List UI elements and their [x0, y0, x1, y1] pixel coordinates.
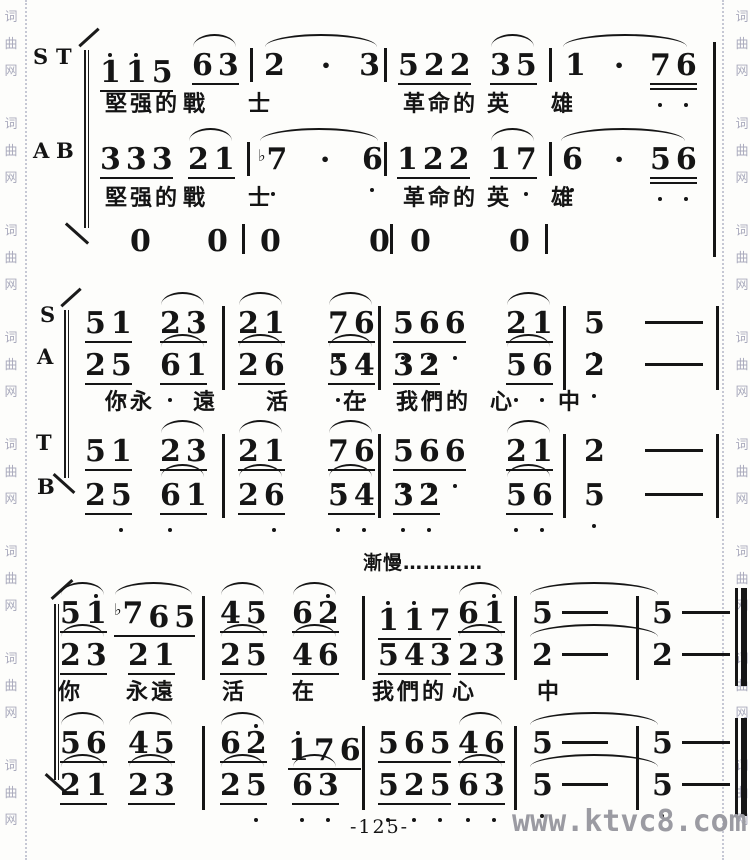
barline: [549, 48, 552, 82]
note: 2: [160, 428, 181, 467]
note-group: 46: [292, 632, 339, 675]
note: 5: [60, 720, 81, 759]
dash-line: [645, 449, 703, 452]
text: 士: [248, 180, 273, 212]
note-group: 63: [458, 762, 505, 805]
note: 6: [292, 762, 313, 801]
margin-watermark-char: 词: [734, 220, 750, 239]
barline: [636, 596, 639, 680]
text: 在: [343, 384, 368, 416]
dash-line: [682, 653, 730, 656]
note-group: •: [614, 136, 624, 179]
note-group: 5: [532, 762, 553, 805]
margin-watermark-char: 网: [734, 274, 750, 293]
note: 7: [328, 428, 349, 467]
note: 4: [458, 720, 479, 759]
system2-bracket-top: [60, 288, 81, 308]
note: 3: [318, 762, 339, 801]
note: 2: [419, 472, 440, 511]
margin-watermark-char: 网: [3, 809, 19, 828]
note: 6: [192, 42, 213, 81]
note: 5: [246, 762, 267, 801]
note: 6: [445, 300, 466, 339]
note-group: 35: [490, 42, 537, 85]
voice-label-b2: B: [37, 474, 55, 499]
note-group: 63: [292, 762, 339, 805]
dash-line: [562, 741, 608, 744]
note-group: 525: [378, 762, 451, 805]
note: 3: [359, 42, 380, 81]
note: 1: [186, 342, 207, 381]
note: 2: [128, 762, 149, 801]
note: 6: [532, 472, 553, 511]
margin-watermark-char: 曲: [3, 782, 19, 801]
margin-watermark-char: 网: [3, 595, 19, 614]
barline: [549, 142, 552, 176]
margin-watermark-char: 曲: [734, 461, 750, 480]
note-group: •: [320, 136, 330, 179]
note-group: 25: [220, 762, 267, 805]
text: 中: [558, 384, 583, 416]
barline: [222, 434, 225, 518]
final-barline: [735, 588, 747, 686]
note: 6: [532, 342, 553, 381]
tempo-marking: 漸慢…………: [363, 548, 483, 575]
barline: [242, 224, 245, 254]
note: 6: [160, 472, 181, 511]
barline: [514, 726, 517, 810]
note: 3: [484, 632, 505, 671]
note: 2: [238, 342, 259, 381]
barline: [563, 434, 566, 518]
margin-watermark-char: 曲: [3, 675, 19, 694]
barline: [390, 224, 393, 254]
barline: [636, 726, 639, 810]
note: 5: [246, 632, 267, 671]
note: 6: [220, 720, 241, 759]
note: 2: [584, 342, 605, 381]
note: 2: [506, 428, 527, 467]
note-group: 0: [369, 218, 390, 261]
note: 6: [160, 342, 181, 381]
note: 1: [126, 49, 147, 88]
dash-line: [682, 611, 730, 614]
voice-label-t2: T: [36, 430, 52, 455]
flat-icon: ♭: [258, 146, 266, 165]
text: 士: [248, 86, 273, 118]
note: 7: [650, 42, 671, 81]
note-group: 122: [397, 136, 470, 179]
note: 6: [264, 472, 285, 511]
text: 中: [537, 674, 562, 706]
text: 活: [266, 384, 291, 416]
note-group: 56: [506, 472, 553, 515]
note: 2: [506, 300, 527, 339]
note: 2: [419, 342, 440, 381]
margin-watermark-char: 词: [734, 113, 750, 132]
note-group: 566: [393, 300, 466, 343]
system2-bracket-line: [64, 310, 69, 478]
barline: [545, 224, 548, 254]
barline: [378, 434, 381, 518]
note-group: 0: [130, 218, 151, 261]
text: 戰: [183, 86, 208, 118]
note: 5: [430, 762, 451, 801]
note: 2: [238, 472, 259, 511]
barline: [384, 48, 387, 82]
note: 5: [516, 42, 537, 81]
note: 2: [60, 632, 81, 671]
note: ♭7: [258, 136, 287, 179]
note: 1: [154, 632, 175, 671]
note: 2: [238, 428, 259, 467]
text: 在: [292, 674, 317, 706]
note: 7: [516, 136, 537, 175]
note: 4: [354, 472, 375, 511]
note: 1: [490, 136, 511, 175]
note: 2: [532, 632, 553, 671]
note: 3: [100, 136, 121, 175]
voice-label-b: B: [56, 138, 74, 163]
note-group: 0: [260, 218, 281, 261]
note-group: 23: [60, 632, 107, 675]
note: 5: [652, 762, 673, 801]
text: 革命的: [403, 86, 478, 118]
note-group: 23: [458, 632, 505, 675]
note: 3: [126, 136, 147, 175]
note: 2: [85, 472, 106, 511]
text: 雄: [551, 86, 576, 118]
note: 2: [264, 42, 285, 81]
note: 5: [154, 720, 175, 759]
barline: [202, 596, 205, 680]
note: 2: [160, 300, 181, 339]
note: 3: [186, 428, 207, 467]
note: 5: [652, 590, 673, 629]
note: 1: [111, 300, 132, 339]
note: 2: [128, 632, 149, 671]
note: 5: [430, 720, 451, 759]
note: •: [614, 136, 624, 175]
note: 6: [445, 428, 466, 467]
note: 3: [86, 632, 107, 671]
note: 6: [676, 42, 697, 81]
note-group: 1: [565, 42, 586, 85]
note: 4: [404, 632, 425, 671]
note-group: 51: [85, 428, 132, 471]
margin-watermark-char: 曲: [734, 33, 750, 52]
margin-watermark-char: 曲: [734, 140, 750, 159]
dash-line: [645, 363, 703, 366]
note: 3: [430, 632, 451, 671]
note: 4: [292, 632, 313, 671]
dash-line: [682, 741, 730, 744]
note: 5: [584, 472, 605, 511]
note-group: 5: [652, 762, 673, 805]
margin-watermark-char: 曲: [3, 461, 19, 480]
note: 6: [148, 594, 169, 633]
barline: [716, 306, 719, 390]
barline: [514, 596, 517, 680]
note: 5: [111, 342, 132, 381]
note: 1: [397, 136, 418, 175]
text: 活: [222, 674, 247, 706]
margin-watermark-char: 词: [734, 434, 750, 453]
final-barline: [735, 718, 747, 816]
note: 5: [652, 720, 673, 759]
note: 6: [354, 300, 375, 339]
margin-watermark-char: 网: [3, 381, 19, 400]
dash-line: [562, 783, 608, 786]
system1-bracket-line: [84, 50, 89, 228]
barline: [362, 596, 365, 680]
note: 6: [458, 590, 479, 629]
note: 2: [318, 590, 339, 629]
note: 5: [378, 762, 399, 801]
note: 5: [393, 300, 414, 339]
margin-watermark-char: 曲: [734, 568, 750, 587]
note: 2: [424, 42, 445, 81]
note: 2: [220, 632, 241, 671]
note: 2: [220, 762, 241, 801]
note: 6: [292, 590, 313, 629]
barline: [222, 306, 225, 390]
voice-label-s: S: [33, 44, 48, 69]
note-group: ♭765: [114, 590, 195, 637]
note: 4: [128, 720, 149, 759]
barline: [250, 48, 253, 82]
note: 1: [532, 300, 553, 339]
margin-watermark-char: 词: [734, 541, 750, 560]
note: 5: [378, 632, 399, 671]
note: 1: [378, 597, 399, 636]
sheet-music-page: 词曲网词曲网词曲网词曲网词曲网词曲网词曲网词曲网 词曲网词曲网词曲网词曲网词曲网…: [0, 0, 750, 860]
text: 我們的: [372, 674, 447, 706]
margin-watermark-char: 曲: [3, 33, 19, 52]
margin-watermark-char: 网: [734, 167, 750, 186]
margin-watermark-char: 网: [734, 60, 750, 79]
note: 0: [369, 218, 390, 257]
barline: [384, 142, 387, 176]
note-group: 2: [584, 342, 605, 385]
text: 堅强的: [105, 86, 180, 118]
note-group: 6: [562, 136, 583, 179]
system1-bracket-top: [78, 28, 99, 48]
note: 4: [220, 590, 241, 629]
note: 0: [207, 218, 228, 257]
note: 5: [393, 428, 414, 467]
note: 2: [652, 632, 673, 671]
note: 6: [86, 720, 107, 759]
barline: [713, 42, 716, 257]
note-group: 61: [160, 342, 207, 385]
note: 2: [584, 428, 605, 467]
note: 2: [423, 136, 444, 175]
text: 堅强的: [105, 180, 180, 212]
note: 3: [393, 472, 414, 511]
note: 6: [419, 428, 440, 467]
note: 5: [60, 590, 81, 629]
note-group: 21: [128, 632, 175, 675]
dash-line: [645, 493, 703, 496]
note: 5: [584, 300, 605, 339]
note-group: 5: [652, 720, 673, 763]
note-group: 115: [100, 42, 173, 92]
text: 遠: [193, 384, 218, 416]
voice-label-a2: A: [37, 344, 53, 369]
note: •: [614, 42, 624, 81]
barline: [716, 434, 719, 518]
note-group: 25: [220, 632, 267, 675]
note: 2: [238, 300, 259, 339]
note: 5: [532, 762, 553, 801]
note-group: 21: [188, 136, 235, 179]
page-number: -125-: [350, 816, 409, 838]
note: •: [320, 136, 330, 175]
margin-watermark-char: 词: [3, 327, 19, 346]
note-group: 63: [192, 42, 239, 85]
margin-watermark-char: 网: [3, 274, 19, 293]
note: 6: [562, 136, 583, 175]
margin-watermark-char: 曲: [3, 354, 19, 373]
left-margin-rule: [25, 0, 27, 860]
margin-watermark-char: 网: [3, 60, 19, 79]
note: 1: [484, 590, 505, 629]
note: 1: [86, 762, 107, 801]
note: 4: [354, 342, 375, 381]
margin-watermark-char: 词: [734, 6, 750, 25]
note: 3: [393, 342, 414, 381]
margin-watermark-char: 曲: [734, 354, 750, 373]
margin-watermark-char: 词: [3, 6, 19, 25]
note-group: 2: [532, 632, 553, 675]
note: 1: [86, 590, 107, 629]
note-group: 25: [85, 472, 132, 515]
note-group: 522: [398, 42, 471, 85]
note-group: 56: [506, 342, 553, 385]
note: 5: [174, 594, 195, 633]
margin-watermark-char: 网: [3, 488, 19, 507]
barline: [362, 726, 365, 810]
note-group: 0: [207, 218, 228, 261]
note: 5: [532, 590, 553, 629]
note-group: 565: [378, 720, 451, 763]
note: 6: [676, 136, 697, 175]
note: 5: [152, 49, 173, 88]
note-group: 54: [328, 472, 375, 515]
right-margin-rule: [722, 0, 724, 860]
voice-label-s2: S: [40, 302, 55, 327]
note-group: 5: [652, 590, 673, 633]
note: 5: [111, 472, 132, 511]
note-group: 566: [393, 428, 466, 471]
note: 1: [100, 49, 121, 88]
note: 6: [318, 632, 339, 671]
note-group: 5: [584, 472, 605, 515]
margin-watermark-char: 网: [734, 381, 750, 400]
text: 你永: [105, 384, 155, 416]
note: 6: [340, 727, 361, 766]
margin-watermark-char: 词: [3, 648, 19, 667]
note: 2: [85, 342, 106, 381]
note: 3: [490, 42, 511, 81]
margin-watermark-char: 词: [3, 220, 19, 239]
note: 1: [264, 428, 285, 467]
note: •: [321, 42, 331, 81]
note: 3: [484, 762, 505, 801]
note: 0: [130, 218, 151, 257]
note: 6: [484, 720, 505, 759]
note: 7: [430, 597, 451, 636]
note: 5: [506, 472, 527, 511]
dash-line: [562, 653, 608, 656]
flat-icon: ♭: [114, 600, 122, 619]
margin-watermark-char: 网: [3, 702, 19, 721]
note-group: 17: [490, 136, 537, 179]
note: 5: [246, 590, 267, 629]
note-group: 76: [650, 42, 697, 85]
note: 5: [378, 720, 399, 759]
note: 6: [354, 428, 375, 467]
note-group: 0: [410, 218, 431, 261]
margin-watermark-char: 网: [734, 488, 750, 507]
margin-watermark-char: 曲: [734, 247, 750, 266]
note: 3: [152, 136, 173, 175]
note: 1: [214, 136, 235, 175]
dash-line: [562, 611, 608, 614]
margin-watermark-char: 词: [3, 113, 19, 132]
note-group: 26: [238, 342, 285, 385]
note: 5: [328, 472, 349, 511]
note: 1: [532, 428, 553, 467]
text: 戰: [183, 180, 208, 212]
note: ♭7: [114, 590, 143, 633]
note: 6: [404, 720, 425, 759]
note-group: 2: [584, 428, 605, 471]
note: 2: [60, 762, 81, 801]
note: 5: [328, 342, 349, 381]
note: 5: [650, 136, 671, 175]
margin-watermark-char: 曲: [3, 247, 19, 266]
dash-line: [682, 783, 730, 786]
note-group: 21: [60, 762, 107, 805]
margin-watermark-char: 词: [734, 327, 750, 346]
note-group: 61: [160, 472, 207, 515]
note: 1: [111, 428, 132, 467]
note: 1: [186, 472, 207, 511]
note: 0: [509, 218, 530, 257]
margin-watermark-char: 词: [3, 755, 19, 774]
note-group: 2: [652, 632, 673, 675]
note: 3: [186, 300, 207, 339]
barline: [563, 306, 566, 390]
text: 英: [487, 180, 512, 212]
note: 6: [264, 342, 285, 381]
note: 5: [506, 342, 527, 381]
note-group: 0: [509, 218, 530, 261]
text: 心: [452, 674, 477, 706]
barline: [202, 726, 205, 810]
note-group: 6: [362, 136, 383, 179]
note: 2: [450, 42, 471, 81]
voice-label-t: T: [56, 44, 72, 69]
note-group: •: [614, 42, 624, 85]
note: 3: [154, 762, 175, 801]
text: 我們的: [396, 384, 471, 416]
note-group: 26: [238, 472, 285, 515]
note-group: 333: [100, 136, 173, 179]
margin-watermark-char: 词: [3, 434, 19, 453]
